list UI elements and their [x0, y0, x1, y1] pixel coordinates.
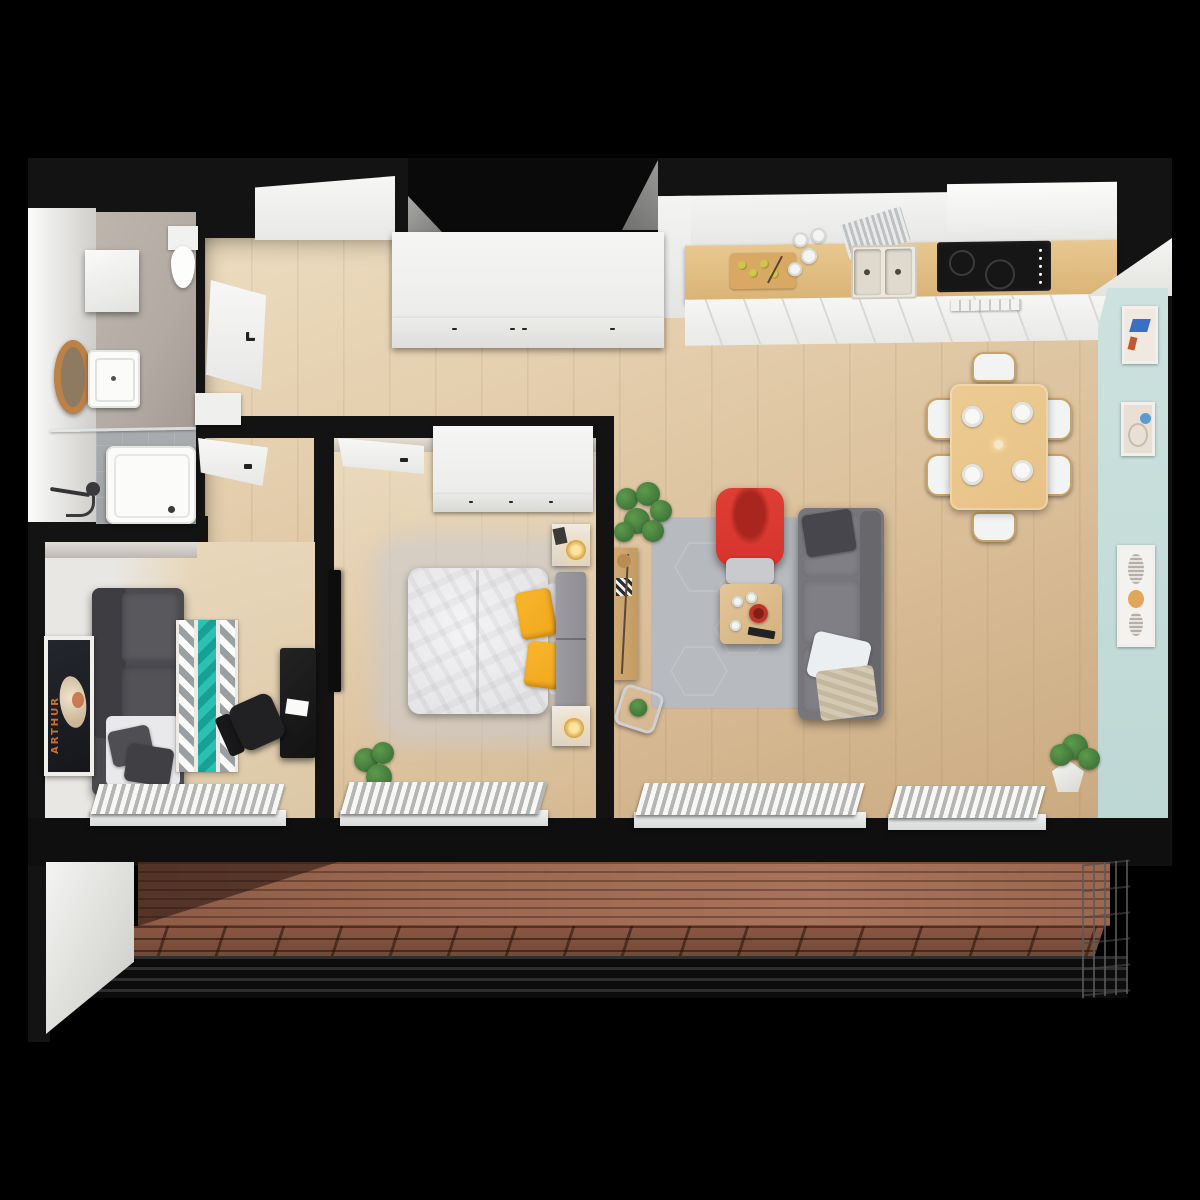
table-lamp [564, 718, 584, 738]
bedroom-wardrobe-front [433, 494, 593, 512]
entry-door-leaf [622, 160, 658, 230]
red-armchair [716, 488, 784, 566]
decor-pole [621, 554, 629, 674]
balcony-railing [54, 956, 1128, 998]
wardrobe-handle [610, 328, 615, 330]
balcony-side-wall [46, 862, 134, 1034]
art-shape [1129, 319, 1151, 332]
cooktop-knob [1039, 257, 1042, 260]
nightstand [552, 706, 590, 746]
daybed-sofa [92, 588, 184, 796]
hall-wardrobe-front [392, 318, 664, 348]
lemon [760, 260, 769, 269]
upper-cabinets [947, 182, 1117, 232]
plate [962, 464, 983, 485]
entry-door-leaf [408, 196, 442, 232]
poster-text: ARTHUR [50, 662, 61, 754]
rug-hexagon [670, 646, 728, 696]
beige-blanket [815, 665, 879, 722]
double-sink [851, 245, 917, 300]
plate [962, 406, 983, 427]
cooktop-knob [1039, 281, 1042, 284]
poster-art: ARTHUR [48, 640, 90, 772]
burner [949, 250, 975, 276]
tub-drain [168, 506, 175, 513]
cooktop-knob [1039, 273, 1042, 276]
art-shape [1129, 612, 1143, 636]
picture-frame [1121, 402, 1155, 456]
nightstand [552, 524, 590, 566]
lemon [738, 261, 747, 270]
tub-inner [114, 454, 190, 518]
art-shape [1128, 423, 1148, 447]
art-shape [1128, 590, 1144, 608]
bathroom-door-open [206, 280, 266, 390]
bathroom-shelf-cabinet [85, 250, 139, 312]
abstract-art [1120, 548, 1152, 644]
bed-sheet-fold [476, 570, 479, 712]
toilet-bowl [171, 246, 195, 288]
headboard-seam [556, 638, 586, 640]
cup [732, 596, 743, 607]
double-bed [408, 566, 588, 716]
base-cabinet-fronts [685, 294, 1117, 346]
cutting-board [730, 252, 796, 289]
daybed-pillow [123, 743, 174, 788]
plate [1012, 460, 1033, 481]
wardrobe-handle [549, 501, 553, 503]
washbasin [88, 350, 140, 408]
door-handle [244, 464, 252, 469]
hall-wardrobe [392, 232, 664, 318]
plant-leaf [650, 500, 672, 522]
dining-table [950, 384, 1048, 510]
wardrobe-handle [510, 328, 515, 330]
dining-area [920, 352, 1080, 548]
plate [1012, 402, 1033, 423]
picture-frame [1117, 545, 1155, 647]
poster-accent [72, 692, 84, 708]
radiator-bedroom [340, 782, 547, 814]
paper-sheet [285, 699, 309, 717]
headboard [556, 572, 586, 708]
decor-round [617, 554, 631, 568]
bathtub [106, 446, 196, 524]
dining-chair [972, 352, 1016, 382]
table-lamp [566, 540, 586, 560]
balcony-wire-fence [1082, 859, 1130, 998]
shower-head [86, 482, 100, 496]
plant-leaf [1050, 744, 1072, 766]
radiator-office [91, 784, 286, 814]
wardrobe-handle [469, 501, 473, 503]
rug-stripe-teal [198, 620, 216, 772]
red-bowl [749, 604, 768, 623]
daybed-cushion [122, 592, 180, 662]
radiator-living-right [888, 786, 1045, 818]
entrance-door-recess [408, 158, 658, 232]
plant-leaf [372, 742, 394, 764]
knife [767, 256, 783, 284]
hall-cabinet [195, 393, 241, 425]
burner [985, 259, 1015, 289]
coffee-table [720, 584, 782, 644]
basin-drain [111, 376, 116, 381]
sink-drain [895, 269, 901, 275]
radiator-living-left [635, 783, 864, 815]
wardrobe-handle [509, 501, 513, 503]
plant-leaf [614, 522, 634, 542]
remote-control [748, 627, 776, 640]
gray-sofa [798, 508, 884, 720]
abstract-art [1125, 309, 1155, 361]
rug-stripe-gray [179, 620, 194, 772]
shower-hose [66, 496, 95, 517]
lemon [749, 269, 758, 278]
wall-mounted-tv [328, 570, 341, 692]
bedroom-wardrobe [433, 426, 593, 494]
shower-handset [48, 478, 104, 518]
cooktop-knob [1039, 249, 1042, 252]
art-shape [1140, 413, 1151, 424]
door-handle [246, 332, 255, 341]
centerpiece [994, 440, 1003, 449]
sideboard [612, 548, 638, 680]
arthur-poster: ARTHUR [44, 636, 94, 776]
sink-drain [864, 269, 870, 275]
wardrobe-handle [452, 328, 457, 330]
induction-cooktop [937, 241, 1051, 293]
book [552, 527, 567, 545]
plant-leaf [616, 488, 638, 510]
door-handle [400, 458, 408, 462]
round-wood-mirror [54, 340, 92, 414]
decor-striped-box [616, 578, 632, 596]
dark-pillow [801, 508, 857, 557]
plant-leaf [642, 520, 664, 542]
wardrobe-handle [522, 328, 527, 330]
office-wall-face [45, 542, 197, 558]
potted-plant [1040, 732, 1100, 802]
kitchen [655, 182, 1117, 353]
art-shape [1128, 554, 1144, 584]
cup [746, 592, 757, 603]
cooktop-knob [1039, 265, 1042, 268]
toilet [168, 226, 198, 290]
apartment-floorplan-render: ARTHUR [0, 0, 1200, 1200]
rug-hexagon-inner [672, 648, 726, 694]
plant-leaf [1078, 748, 1100, 770]
dining-chair [972, 512, 1016, 542]
picture-frame [1122, 306, 1158, 364]
abstract-art [1124, 405, 1152, 453]
vent-drawer [951, 299, 1021, 311]
monstera-plant [612, 482, 674, 548]
art-shape [1128, 336, 1138, 350]
armchair-base [726, 558, 774, 584]
plant-leaf [627, 696, 650, 719]
bedroom-right-wall [596, 416, 614, 818]
cup [730, 620, 741, 631]
office-chair [220, 688, 286, 760]
